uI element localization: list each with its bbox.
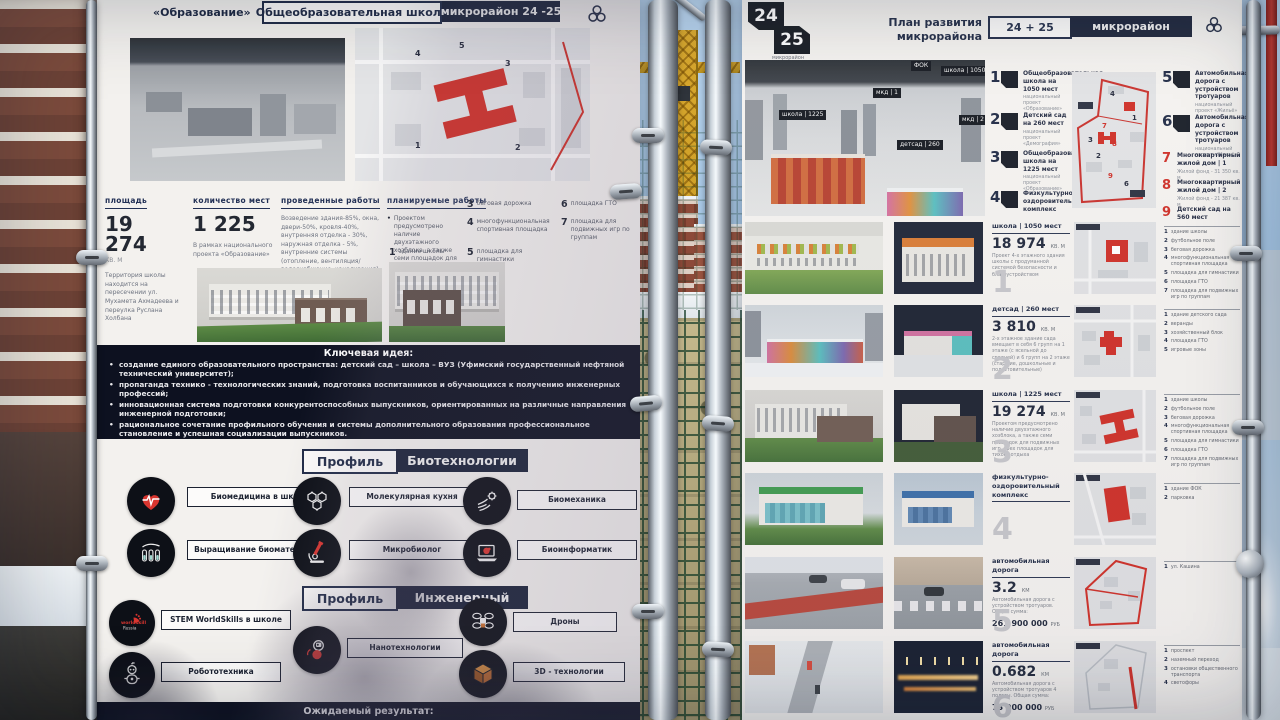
pole-clamp	[76, 250, 108, 265]
frame-pole	[86, 0, 97, 720]
seats-note: В рамках национального проекта «Образова…	[193, 242, 275, 259]
row-legend-item: 4светофоры	[1164, 681, 1240, 687]
district-box: микрорайон 24 -25	[442, 1, 560, 22]
key-idea-bullet: пропаганда технико - технологических зна…	[119, 380, 628, 399]
key-idea-band: Ключевая идея: создание единого образова…	[97, 345, 640, 439]
car-shape	[815, 685, 820, 694]
legend-item: 8 Многоквартирный жилой дом | 2Жилой фон…	[1162, 179, 1240, 209]
svg-text:Russia: Russia	[123, 626, 137, 631]
fence-bottom	[0, 626, 97, 720]
school-render	[197, 268, 382, 342]
car-shape	[807, 661, 812, 670]
row-map	[1074, 222, 1156, 294]
building-shape	[294, 104, 336, 134]
render-photo-night	[894, 305, 983, 377]
night-road-photo	[894, 641, 983, 713]
pole-joint-ball	[1236, 550, 1264, 578]
bike-lane	[745, 585, 883, 620]
row-legend-item: 7площадка для подвижных игр по группам	[1164, 457, 1240, 469]
svg-text:3: 3	[1088, 136, 1093, 144]
planned-work-item: 6площадка ГТО	[561, 200, 635, 210]
row-legend-item: 3остановки общественного транспорта	[1164, 667, 1240, 679]
heart-ecg-icon	[127, 477, 175, 525]
row-map	[1074, 473, 1156, 545]
row-map	[1074, 390, 1156, 462]
seats-stat: количество мест 1 225 В рамках националь…	[193, 188, 275, 259]
bionic-hand-icon	[463, 477, 511, 525]
light-streak	[898, 675, 978, 680]
row-legend-item: 2веранды	[1164, 322, 1240, 328]
school-render	[389, 262, 505, 342]
worldskills-icon: worldskillsRussia	[109, 600, 155, 646]
test-tubes-icon	[127, 529, 175, 577]
render-photo	[745, 390, 883, 462]
profile-label-box: Профиль	[302, 449, 398, 474]
cube-3d-icon	[459, 650, 507, 698]
row-legend-item: 4многофункциональная спортивная площадка	[1164, 256, 1240, 268]
key-idea-title: Ключевая идея:	[97, 348, 640, 359]
map-label: мкд | 2	[959, 115, 985, 125]
aerial-photo: школа | 1225 мкд | 1 детсад | 260 ФОК шк…	[745, 60, 985, 216]
frame-pole	[1246, 0, 1261, 720]
pole-clamp	[1230, 246, 1262, 261]
street-photo	[745, 557, 883, 629]
street-lights	[894, 657, 983, 665]
frame-pole	[705, 0, 731, 720]
pole-clamp	[702, 641, 735, 658]
render-photo-night	[894, 390, 983, 462]
done-works-title: проведенные работы	[281, 196, 380, 209]
render-photo-night	[894, 222, 983, 294]
row-legend: 1здание детского сада 2веранды 3хозяйств…	[1164, 309, 1240, 357]
profile-item-label: Биомеханика	[517, 490, 637, 510]
seats-label: количество мест	[193, 196, 270, 209]
school-type-box: Общеобразовательная школа	[262, 1, 442, 24]
district-map: 41 87 32 96	[1072, 72, 1156, 208]
row-legend-item: 5площадка для гимнастики	[1164, 439, 1240, 445]
svg-text:5: 5	[459, 41, 465, 50]
row-number: 5	[992, 607, 1013, 637]
render-photo	[745, 222, 883, 294]
svg-text:9: 9	[1108, 172, 1113, 180]
svg-text:2: 2	[515, 143, 521, 152]
profile-item-label: Молекулярная кухня	[349, 487, 475, 507]
legend-item: 4 Физкультурно-оздоровительный комплекс	[990, 190, 1070, 215]
district-label-box: микрорайон	[1070, 16, 1192, 37]
row-legend: 1здание ФОК 2парковка	[1164, 483, 1240, 505]
building-shape	[745, 311, 761, 357]
molecule-icon	[293, 477, 341, 525]
svg-text:7: 7	[1102, 122, 1107, 130]
aerial-road-photo	[745, 641, 883, 713]
row-legend-item: 5игровые зоны	[1164, 348, 1240, 354]
glass-front	[908, 507, 952, 523]
row-value: 19 274 кв. м	[992, 405, 1070, 419]
svg-text:4: 4	[415, 49, 421, 58]
building-shape	[934, 416, 976, 442]
logo-25-flag: 25	[774, 26, 810, 54]
light-streak	[904, 687, 976, 691]
key-idea-bullet: создание единого образовательного простр…	[119, 360, 628, 379]
row-legend: 1здание школы 2футбольное поле 3беговая …	[1164, 226, 1240, 303]
map-label: детсад | 260	[897, 140, 943, 150]
car-shape	[924, 587, 944, 596]
row-value: 3 810 кв. м	[992, 320, 1070, 334]
row-value: 18 974 кв. м	[992, 237, 1070, 251]
area-stat: площадь 19 274 кв. м Территория школы на…	[105, 188, 181, 324]
lawn	[389, 326, 505, 342]
row-number: 1	[992, 268, 1013, 298]
flag-icon	[1001, 151, 1018, 168]
row-legend-item: 2наземный переход	[1164, 658, 1240, 664]
row-number: 2	[992, 355, 1013, 385]
row-info: физкультурно-оздоровительный комплекс	[992, 473, 1070, 505]
row-legend-item: 2футбольное поле	[1164, 239, 1240, 245]
pole-clamp	[632, 604, 664, 619]
render-photo	[745, 473, 883, 545]
snow	[745, 557, 883, 573]
row-legend-item: 4многофункциональная спортивная площадка	[1164, 424, 1240, 436]
row-number: 6	[992, 693, 1013, 720]
svg-text:3: 3	[505, 59, 511, 68]
svg-text:4: 4	[1110, 90, 1115, 98]
legend-item: 1 Общеобразовательная школа на 1050 мест…	[990, 70, 1070, 113]
snow	[745, 363, 883, 377]
lawn	[894, 442, 983, 462]
row-legend-item: 1здание школы	[1164, 230, 1240, 236]
lawn	[197, 322, 382, 342]
snow	[0, 566, 97, 630]
dark-yard	[0, 432, 97, 572]
profile-name-box: Биотехнологии	[396, 449, 528, 472]
planned-work-item: 7площадка для подвижных игр по группам	[561, 218, 635, 241]
nano-robot-icon	[293, 626, 341, 674]
kindergarten-building	[904, 331, 972, 355]
kindergarten-building	[887, 188, 963, 216]
pole-clamp	[702, 415, 735, 432]
svg-text:1: 1	[1132, 114, 1137, 122]
planned-work-item: 4многофункциональная спортивная площадка	[467, 218, 555, 234]
expected-result-title: Ожидаемый результат:	[97, 706, 640, 717]
street-photo	[894, 557, 983, 629]
map-label: ФОК	[911, 61, 931, 71]
trefoil-logo-icon	[1204, 15, 1224, 35]
profile-item-label: Робототехника	[161, 662, 281, 682]
area-label: площадь	[105, 196, 147, 209]
window-band	[757, 258, 859, 266]
row-legend-item: 1проспект	[1164, 649, 1240, 655]
road-shape	[152, 140, 322, 158]
left-poster: «Образование» Общеобразовательная школа …	[97, 0, 640, 720]
row-legend: 1здание школы 2футбольное поле 3беговая …	[1164, 394, 1240, 471]
row-legend-item: 1здание школы	[1164, 398, 1240, 404]
pole-clamp	[610, 183, 643, 200]
svg-text:6: 6	[1124, 180, 1129, 188]
pole-clamp	[632, 128, 664, 143]
development-row: автомобильная дорога 3.2 км Автомобильна…	[742, 555, 1242, 635]
profile-item-label: Нанотехнологии	[347, 638, 463, 658]
row-legend-item: 2футбольное поле	[1164, 407, 1240, 413]
building-shape	[817, 416, 873, 442]
building-shape	[260, 94, 286, 136]
row-title: автомобильная дорога	[992, 557, 1070, 578]
profile-item-label: Микробиолог	[349, 540, 475, 560]
render-photo	[745, 305, 883, 377]
flag-icon	[1001, 191, 1018, 208]
development-row: автомобильная дорога 0.682 км Автомобиль…	[742, 639, 1242, 719]
building-shape	[188, 108, 252, 136]
row-title: школа | 1050 мест	[992, 222, 1070, 234]
program-label: «Образование»	[153, 6, 251, 19]
district-sum-box: 24 + 25	[988, 16, 1072, 39]
kindergarten-building	[767, 339, 863, 364]
drone-icon	[459, 598, 507, 646]
row-title: школа | 1225 мест	[992, 390, 1070, 402]
laptop-brain-icon	[463, 529, 511, 577]
building-shape	[865, 313, 883, 361]
flag-icon	[1173, 71, 1190, 88]
row-legend-item: 4площадка ГТО	[1164, 339, 1240, 345]
school-1225-building	[771, 154, 865, 204]
flag-icon	[1001, 71, 1018, 88]
pole-clamp	[1232, 420, 1264, 435]
profile-item-label: 3D - технологии	[513, 662, 625, 682]
trefoil-logo-icon	[586, 3, 608, 25]
road-shape	[784, 641, 835, 713]
area-unit: кв. м	[105, 257, 181, 264]
glass-front	[765, 503, 825, 523]
flag-icon	[1173, 115, 1190, 132]
row-value: 3.2 км	[992, 581, 1070, 595]
pole-clamp	[700, 139, 733, 156]
row-map	[1074, 641, 1156, 713]
row-legend-item: 2парковка	[1164, 496, 1240, 502]
row-legend-item: 1ул. Кашина	[1164, 565, 1240, 571]
window-band	[906, 254, 970, 276]
window-band	[301, 308, 361, 322]
road-markings	[894, 601, 983, 611]
row-title: автомобильная дорога	[992, 641, 1070, 662]
profile-name-box: Инженерный	[396, 586, 528, 609]
poster-title: План развития микрорайона	[860, 16, 982, 45]
area-note: Территория школы находится на пересечени…	[105, 272, 181, 324]
building-shape	[863, 104, 876, 156]
site-plan-map: 431 25	[355, 28, 590, 181]
row-legend-item: 5площадка для гимнастики	[1164, 271, 1240, 277]
row-number: 3	[992, 438, 1013, 468]
row-value: 0.682 км	[992, 665, 1070, 679]
row-legend-item: 1здание детского сада	[1164, 313, 1240, 319]
district-logo: 24 25 микрорайон	[748, 2, 816, 62]
flag-icon	[1001, 113, 1018, 130]
row-legend: 1проспект 2наземный переход 3остановки о…	[1164, 645, 1240, 690]
profile-item-label: Дроны	[513, 612, 617, 632]
render-photo	[894, 473, 983, 545]
microscope-icon	[293, 529, 341, 577]
row-map	[1074, 305, 1156, 377]
planned-work-item: 3беговая дорожка	[467, 200, 555, 210]
building-shape	[841, 110, 857, 158]
row-legend: 1ул. Кашина	[1164, 561, 1240, 574]
key-idea-bullet: рациональное сочетание профильного обуче…	[119, 420, 628, 439]
building-shape	[745, 100, 763, 160]
seats-value: 1 225	[193, 214, 275, 234]
row-legend-item: 3беговая дорожка	[1164, 416, 1240, 422]
brick-building	[0, 0, 97, 438]
car-shape	[841, 579, 865, 589]
legend-item: 3 Общеобразовательная школа на 1225 мест…	[990, 150, 1070, 193]
row-legend-item: 3беговая дорожка	[1164, 248, 1240, 254]
profile-item-label: STEM WorldSkills в школе	[161, 610, 291, 630]
right-poster: 24 25 микрорайон План развития микрорайо…	[742, 0, 1242, 720]
building-shape	[749, 645, 775, 675]
building-shape	[146, 92, 182, 112]
car-shape	[809, 575, 827, 583]
profile-label-box: Профиль	[302, 586, 398, 611]
logo-24-flag: 24	[748, 2, 784, 30]
row-legend-item: 6площадка ГТО	[1164, 280, 1240, 286]
row-legend-item: 1здание ФОК	[1164, 487, 1240, 493]
site-plan-drawing: 431 25	[355, 28, 590, 181]
key-idea-bullet: инновационная система подготовки конкуре…	[119, 400, 628, 419]
district-map-drawing: 41 87 32 96	[1072, 72, 1156, 208]
legend-item: 2 Детский сад на 260 местнациональный пр…	[990, 112, 1070, 148]
development-row: школа | 1225 мест 19 274 кв. м Проектом …	[742, 388, 1242, 468]
map-label: школа | 1225	[779, 110, 826, 120]
photo-scene: «Образование» Общеобразовательная школа …	[0, 0, 1280, 720]
row-map	[1074, 557, 1156, 629]
row-legend-item: 6площадка ГТО	[1164, 448, 1240, 454]
map-label: мкд | 1	[873, 88, 901, 98]
expected-result-band: Ожидаемый результат:	[97, 702, 640, 720]
window-band	[757, 244, 859, 254]
snow	[894, 355, 983, 377]
building-shape	[773, 94, 787, 150]
row-number: 4	[992, 515, 1013, 545]
row-legend-item: 3хозяйственный блок	[1164, 331, 1240, 337]
development-row: физкультурно-оздоровительный комплекс 4 …	[742, 471, 1242, 551]
legend-item: 7 Многоквартирный жилой дом | 1Жилой фон…	[1162, 152, 1240, 182]
map-label: школа | 1050	[941, 66, 985, 76]
row-title: физкультурно-оздоровительный комплекс	[992, 473, 1070, 502]
legend-item: 5 Автомобильная дорога с устройством тро…	[1162, 70, 1240, 115]
building-shape	[961, 98, 981, 162]
person-shadow	[343, 500, 478, 645]
svg-text:8: 8	[1112, 140, 1117, 148]
window-band	[407, 300, 457, 314]
aerial-photo	[130, 38, 345, 181]
area-value: 19 274	[105, 214, 181, 254]
row-title: детсад | 260 мест	[992, 305, 1070, 317]
profile-item-label: Биоинформатик	[517, 540, 637, 560]
pole-clamp	[76, 556, 108, 571]
development-row: школа | 1050 мест 18 974 кв. м Проект 4-…	[742, 220, 1242, 300]
development-row: детсад | 260 мест 3 810 кв. м 2-х этажно…	[742, 303, 1242, 383]
robot-icon	[109, 652, 155, 698]
svg-text:2: 2	[1096, 152, 1101, 160]
row-legend-item: 7площадка для подвижных игр по группам	[1164, 289, 1240, 301]
svg-text:1: 1	[415, 141, 421, 150]
